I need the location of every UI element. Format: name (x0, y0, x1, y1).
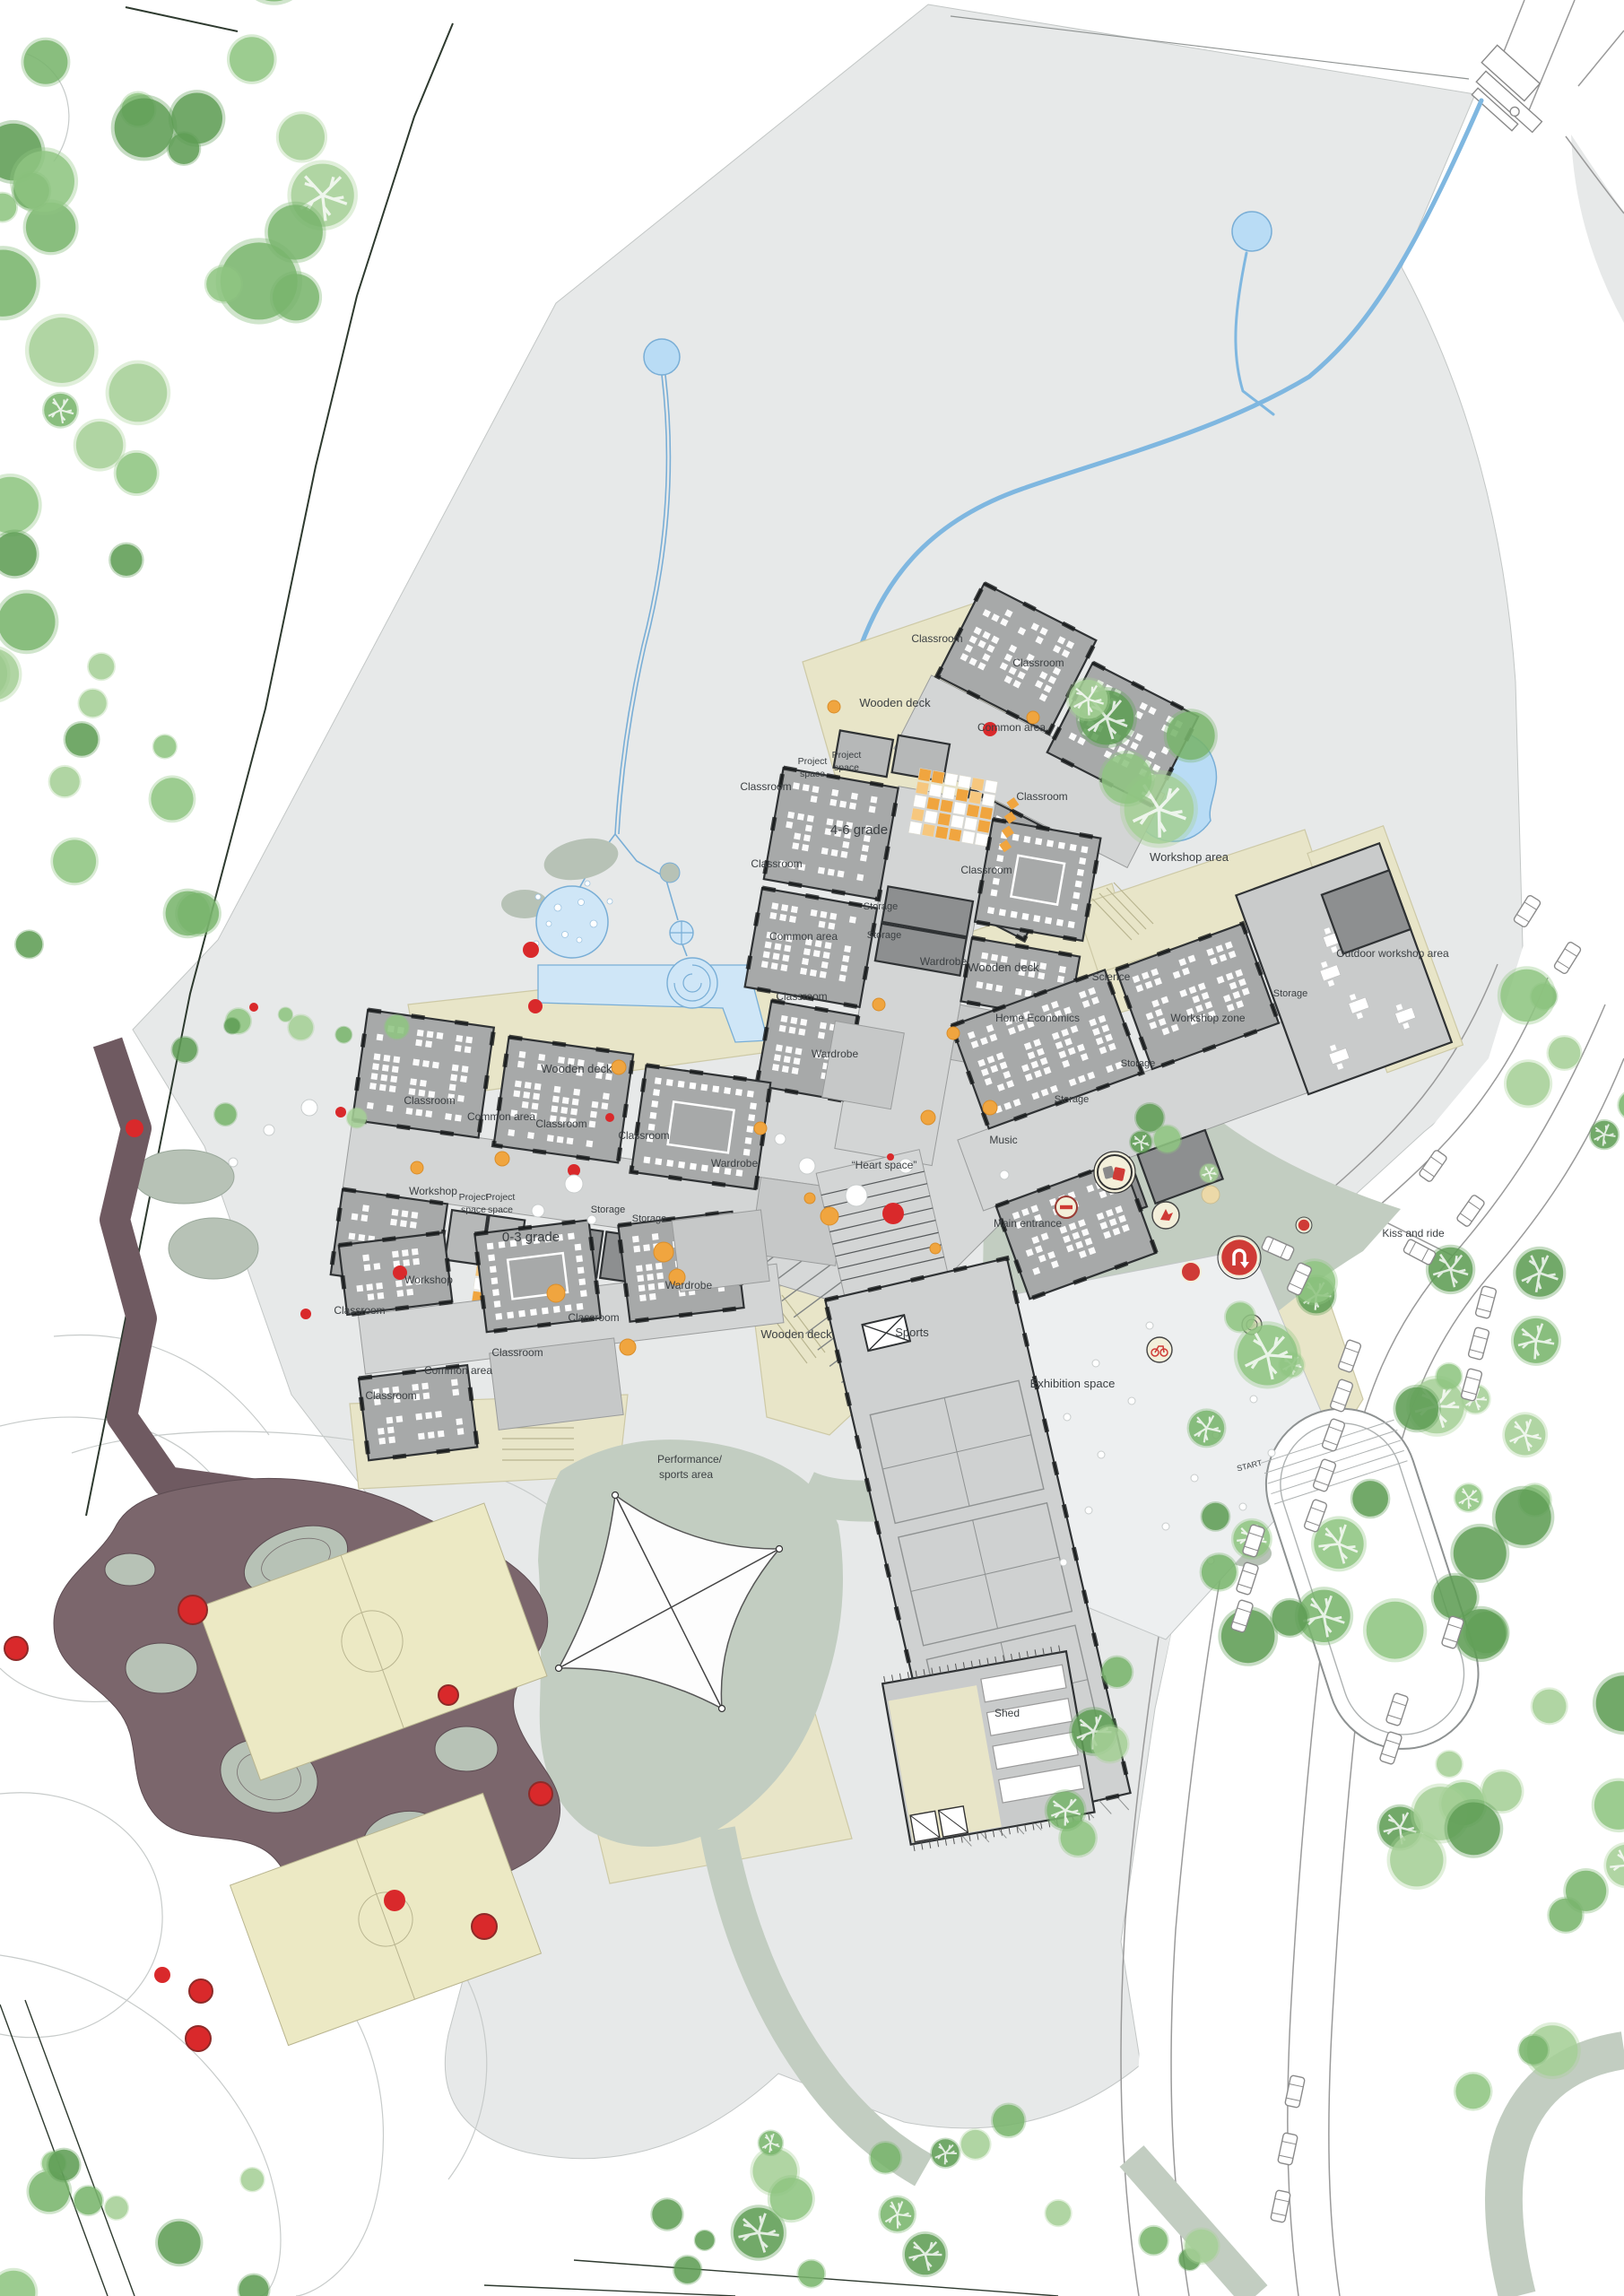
play-equipment-red-dot (189, 1979, 213, 2003)
tree-icon (1453, 1606, 1508, 1662)
furniture-orange-dot (612, 1060, 626, 1074)
play-equipment-red-dot (384, 1890, 405, 1911)
area-label-classroom: Classroom (1016, 790, 1067, 803)
play-equipment-red-dot (439, 1685, 458, 1705)
area-label-wardrobe: Wardrobe (665, 1279, 713, 1291)
tree-icon (1350, 1479, 1391, 1519)
tree-icon (334, 1026, 352, 1044)
area-label-storage: Storage (632, 1213, 667, 1224)
tree-icon (42, 392, 79, 429)
tree-icon (346, 1107, 368, 1128)
tree-icon (1199, 1163, 1220, 1184)
area-label-classroom: Classroom (740, 780, 791, 793)
furniture-white-dot (229, 1158, 238, 1167)
tree-icon (48, 765, 82, 798)
play-equipment-red-dot (335, 1107, 346, 1118)
furniture-orange-dot (547, 1284, 565, 1302)
tree-icon (1152, 1125, 1182, 1154)
area-label-space: space (800, 769, 825, 779)
area-label-science: Science (1092, 970, 1131, 983)
furniture-orange-dot (921, 1110, 935, 1125)
tree-icon (227, 34, 277, 84)
area-label-project: Project (832, 750, 862, 761)
tree-icon (650, 2197, 683, 2231)
play-equipment-red-dot (528, 999, 543, 1013)
playground-icon-bike (1147, 1337, 1172, 1362)
area-label-space: space (461, 1205, 486, 1215)
area-label-wardrobe: Wardrobe (711, 1157, 759, 1170)
tree-icon (1270, 1598, 1309, 1638)
tree-icon (1187, 1408, 1227, 1448)
furniture-white-dot (532, 1205, 544, 1217)
area-label-storage: Storage (867, 930, 902, 941)
tree-icon (87, 652, 116, 681)
tree-icon (265, 202, 326, 264)
tree-icon (204, 265, 243, 303)
area-label-classroom: Classroom (334, 1304, 385, 1317)
area-label-kiss-and-ride: Kiss and ride (1382, 1227, 1445, 1239)
site-plan-canvas: Wooden deckClassroomClassroomCommon area… (0, 0, 1624, 2296)
furniture-white-dot (1239, 1503, 1246, 1510)
tree-icon (768, 2175, 815, 2222)
tree-icon (106, 361, 171, 426)
furniture-white-dot (775, 1134, 786, 1144)
area-label-classroom: Classroom (751, 857, 802, 870)
furniture-orange-dot (828, 700, 840, 713)
area-label-wooden-deck: Wooden deck (859, 696, 931, 709)
tree-icon (878, 2196, 916, 2234)
tree-icon (155, 2219, 203, 2266)
area-label-storage: Storage (591, 1205, 626, 1215)
area-label-storage: Storage (1055, 1094, 1090, 1105)
furniture-orange-dot (620, 1339, 636, 1355)
playground-icon-red-dot (1181, 1262, 1201, 1282)
tree-icon (1099, 751, 1155, 807)
play-equipment-red-dot (300, 1309, 311, 1319)
furniture-white-dot (1064, 1413, 1071, 1421)
tree-icon (10, 147, 78, 215)
tree-icon (104, 2196, 129, 2221)
tree-icon (78, 688, 109, 718)
furniture-white-dot (1060, 1559, 1067, 1566)
area-label-music: Music (989, 1134, 1017, 1146)
tree-icon (1224, 1300, 1256, 1333)
play-equipment-red-dot (605, 1113, 614, 1122)
tree-icon (276, 111, 327, 162)
tree-icon (673, 2255, 703, 2285)
area-label-exhibition-space: Exhibition space (1030, 1377, 1116, 1390)
tree-icon (991, 2103, 1027, 2139)
tree-icon (1164, 709, 1218, 762)
area-label-classroom: Classroom (1012, 657, 1064, 669)
tree-icon (1589, 1119, 1620, 1150)
area-label-wooden-deck: Wooden deck (541, 1062, 612, 1075)
tree-icon (1511, 1316, 1561, 1366)
area-label-sports: Sports (895, 1326, 929, 1339)
playground-icon-u-turn (1218, 1236, 1261, 1279)
furniture-white-dot (1191, 1474, 1198, 1482)
tree-icon (1363, 1598, 1427, 1662)
area-label-main-entrance: Main entrance (994, 1217, 1062, 1230)
tree-icon (1183, 2228, 1220, 2266)
page: { "document": { "kind": "architectural s… (0, 0, 1624, 2296)
tree-icon (1504, 1059, 1552, 1108)
furniture-white-dot (846, 1185, 867, 1206)
tree-icon (1100, 1656, 1133, 1689)
furniture-white-dot (1250, 1396, 1257, 1403)
furniture-orange-dot (411, 1161, 423, 1174)
tree-icon (14, 929, 44, 959)
play-equipment-red-dot (882, 1203, 904, 1224)
furniture-orange-dot (821, 1207, 838, 1225)
play-equipment-red-dot (523, 942, 539, 958)
tree-icon (1517, 2034, 1550, 2066)
playground-icon-bird (1152, 1202, 1179, 1229)
furniture-white-dot (1162, 1523, 1169, 1530)
area-label-shed: Shed (994, 1707, 1020, 1719)
playground-icon-books (1094, 1152, 1135, 1193)
area-label-0-3-grade: 0-3 grade (502, 1230, 560, 1245)
tree-icon (1066, 677, 1110, 721)
area-label-project: Project (459, 1192, 489, 1203)
furniture-orange-dot (873, 998, 885, 1011)
tree-icon (47, 2148, 82, 2183)
tree-icon (1200, 1552, 1239, 1592)
tree-icon (163, 889, 213, 939)
tree-icon (1454, 1483, 1483, 1512)
tree-icon (1492, 1486, 1555, 1549)
tree-icon (758, 2130, 785, 2157)
tree-icon (25, 314, 99, 387)
furniture-orange-dot (804, 1193, 815, 1204)
tree-icon (1394, 1385, 1441, 1432)
area-label-sports-area: sports area (659, 1468, 713, 1481)
playground-icon-no-entry (1055, 1196, 1077, 1218)
tree-icon (1498, 966, 1556, 1024)
furniture-white-dot (1085, 1507, 1092, 1514)
area-label-wooden-deck: Wooden deck (968, 961, 1039, 974)
pond-small-east (1232, 212, 1272, 251)
area-label-performance: Performance/ (657, 1453, 723, 1465)
furniture-white-dot (587, 1215, 596, 1224)
area-label-classroom: Classroom (568, 1311, 619, 1324)
tree-icon (1435, 1362, 1463, 1390)
furniture-orange-dot (654, 1242, 673, 1262)
area-label-wooden-deck: Wooden deck (760, 1327, 832, 1341)
area-label-classroom: Classroom (911, 632, 962, 645)
furniture-white-dot (1128, 1397, 1135, 1405)
tree-icon (1201, 1501, 1231, 1532)
area-label-classroom: Classroom (618, 1129, 669, 1142)
tree-icon (213, 1102, 238, 1126)
tree-icon (1129, 1130, 1153, 1154)
furniture-white-dot (1092, 1360, 1099, 1367)
furniture-orange-dot (754, 1122, 767, 1135)
area-label-wardrobe: Wardrobe (812, 1048, 859, 1060)
area-label-classroom: Classroom (960, 864, 1012, 876)
tree-icon (270, 271, 322, 323)
tree-icon (64, 721, 100, 758)
area-label-home-economics: Home Economics (995, 1012, 1080, 1024)
tree-icon (384, 1013, 410, 1039)
tree-icon (1435, 1750, 1463, 1779)
area-label-classroom: Classroom (404, 1094, 455, 1107)
tree-icon (223, 1017, 241, 1035)
playground-icon-red-ring (1296, 1217, 1312, 1233)
area-label-workshop: Workshop (404, 1274, 453, 1286)
play-equipment-red-dot (472, 1914, 497, 1939)
area-label-classroom: Classroom (365, 1389, 416, 1402)
furniture-white-dot (565, 1175, 583, 1193)
furniture-white-dot (301, 1100, 317, 1116)
pond-small-west (644, 339, 680, 375)
tree-icon (21, 38, 70, 87)
tree-icon (149, 776, 196, 823)
tree-icon (1513, 1247, 1566, 1300)
furniture-orange-dot (930, 1243, 941, 1254)
play-equipment-red-dot (529, 1782, 552, 1805)
furniture-white-dot (264, 1125, 274, 1135)
play-equipment-red-dot (154, 1967, 170, 1983)
area-label-common-area: Common area (769, 930, 838, 943)
furniture-orange-dot (495, 1152, 509, 1166)
area-label-space: space (488, 1205, 513, 1215)
area-label-classroom: Classroom (776, 990, 827, 1003)
tree-icon (111, 95, 178, 161)
furniture-white-dot (1000, 1170, 1009, 1179)
area-label-space: space (834, 762, 859, 773)
tree-icon (1563, 1868, 1609, 1914)
play-equipment-red-dot (178, 1596, 207, 1624)
tree-icon (1454, 2072, 1493, 2111)
tree-icon (73, 2185, 104, 2216)
area-label-storage: Storage (864, 901, 899, 912)
area-label-classroom: Classroom (491, 1346, 543, 1359)
area-label-common-area: Common area (977, 721, 1046, 734)
tree-icon (1138, 2225, 1169, 2257)
tree-icon (109, 543, 144, 578)
tree-icon (930, 2138, 960, 2169)
tree-icon (869, 2141, 903, 2175)
tree-icon (1445, 1799, 1504, 1858)
area-label-heart-space: “Heart space” (852, 1159, 917, 1171)
area-label-wardrobe: Wardrobe (920, 955, 968, 968)
area-label-workshop-zone: Workshop zone (1170, 1012, 1245, 1024)
area-label-storage: Storage (1273, 988, 1308, 999)
playground-icon-cream-dot (1202, 1186, 1220, 1204)
furniture-orange-dot (983, 1100, 997, 1115)
area-label-workshop-area: Workshop area (1150, 850, 1229, 864)
furniture-white-dot (1098, 1451, 1105, 1458)
tree-icon (902, 2231, 948, 2277)
play-equipment-red-dot (186, 2026, 211, 2051)
area-label-outdoor-workshop-area: Outdoor workshop area (1336, 947, 1449, 960)
play-equipment-red-dot (4, 1637, 28, 1660)
furniture-white-dot (799, 1158, 815, 1174)
tree-icon (239, 2167, 265, 2192)
tree-icon (152, 734, 178, 759)
area-label-common-area: Common area (424, 1364, 492, 1377)
furniture-white-dot (1146, 1322, 1153, 1329)
play-equipment-red-dot (126, 1119, 143, 1137)
furniture-orange-dot (947, 1027, 960, 1039)
area-label-storage: Storage (1121, 1058, 1156, 1069)
tree-icon (1090, 1725, 1130, 1764)
tree-icon (1502, 1412, 1548, 1457)
tree-icon (960, 2128, 992, 2161)
play-equipment-red-dot (249, 1003, 258, 1012)
area-label-workshop: Workshop (409, 1185, 457, 1197)
tree-icon (796, 2259, 826, 2289)
tree-icon (1531, 1687, 1568, 1725)
furniture-white-dot (1268, 1449, 1275, 1457)
tree-icon (278, 1007, 293, 1022)
tree-icon (50, 838, 99, 886)
tree-icon (1045, 1789, 1087, 1831)
tree-icon (1547, 1035, 1583, 1071)
area-label-project: Project (798, 756, 828, 767)
tree-icon (694, 2230, 716, 2251)
area-label-4-6-grade: 4-6 grade (830, 822, 888, 838)
tree-icon (1045, 2199, 1073, 2227)
area-label-common-area: Common area (467, 1110, 535, 1123)
area-label-classroom: Classroom (535, 1118, 586, 1130)
area-label-project: Project (486, 1192, 516, 1203)
tree-icon (114, 450, 160, 496)
tree-icon (171, 1036, 199, 1064)
site-plan-svg: Wooden deckClassroomClassroomCommon area… (0, 0, 1624, 2296)
